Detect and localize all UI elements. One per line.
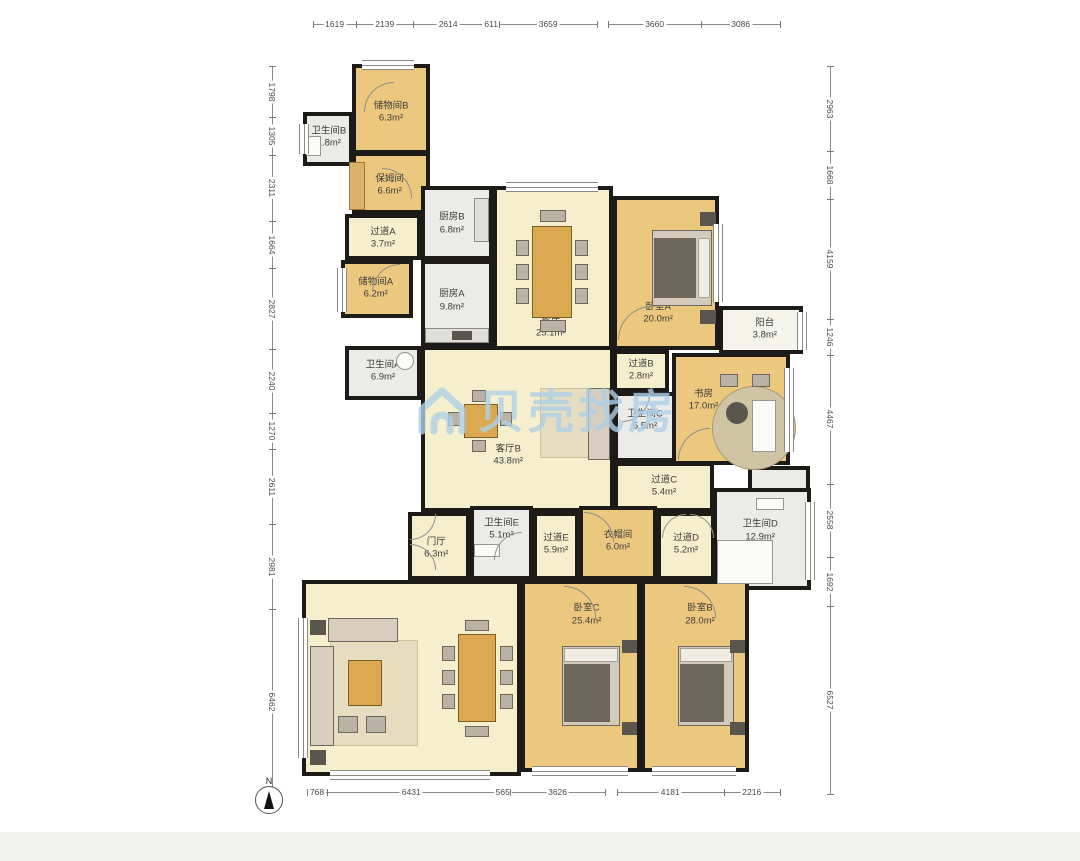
dim-tick xyxy=(269,524,276,525)
dining-chair-6 xyxy=(575,288,588,304)
room-name: 卫生间D xyxy=(743,519,778,531)
room-area: 5.4m² xyxy=(651,487,677,499)
dining-chair-2 xyxy=(516,264,529,280)
dim-tick xyxy=(269,349,276,350)
dim-value: 2558 xyxy=(825,509,835,532)
room-area: 9.8m² xyxy=(439,301,464,313)
dim-value: 6431 xyxy=(400,787,423,797)
dim-value: 565 xyxy=(494,787,512,797)
dim-tick xyxy=(827,484,834,485)
room-label-living-b: 客厅B43.8m² xyxy=(493,444,523,469)
dim-value: 1668 xyxy=(825,164,835,187)
footer-strip xyxy=(0,832,1080,861)
bath-d-tub xyxy=(717,540,773,584)
dim-value: 2614 xyxy=(437,19,460,29)
room-name: 书房 xyxy=(689,388,719,400)
dim-tick xyxy=(269,155,276,156)
bedroom-b-nightstand-2 xyxy=(730,722,745,735)
room-name: 卫生间E xyxy=(484,517,519,529)
win-bedroom-a-right xyxy=(713,224,723,302)
win-balcony-right xyxy=(797,312,807,350)
bedroom-b-pillow xyxy=(680,648,732,662)
bedroom-b-nightstand-1 xyxy=(730,640,745,653)
dining-chair-7 xyxy=(540,210,566,222)
room-name: 厨房B xyxy=(439,212,464,224)
dim-value: 1305 xyxy=(267,125,277,148)
living-a-ottoman-2 xyxy=(366,716,386,733)
dim-value: 2611 xyxy=(267,476,277,498)
room-label-corridor-b: 过道B2.8m² xyxy=(628,359,653,384)
living-b-table xyxy=(464,404,498,438)
win-bath-d-right xyxy=(805,502,815,580)
room-area: 5.5m² xyxy=(627,421,662,433)
living-a-chair-6 xyxy=(500,694,513,709)
dim-tick xyxy=(413,21,414,28)
win-bath-b-left xyxy=(299,124,309,154)
dim-value: 2827 xyxy=(267,297,277,320)
dim-tick xyxy=(499,21,500,28)
compass-north-label: N xyxy=(252,776,286,786)
dim-value: 1619 xyxy=(323,19,346,29)
dim-tick xyxy=(597,21,598,28)
room-name: 阳台 xyxy=(753,318,777,330)
living-a-chair-7 xyxy=(465,620,489,631)
dim-chain-left-0: 1798130523111664282722401270261129816462 xyxy=(265,66,279,794)
dining-chair-4 xyxy=(575,240,588,256)
dining-chair-1 xyxy=(516,240,529,256)
dim-chain-top-1: 36603086 xyxy=(608,17,780,31)
room-name: 客厅B xyxy=(493,444,523,456)
room-area: 2.8m² xyxy=(628,371,653,383)
dim-tick xyxy=(617,789,618,796)
living-a-chair-1 xyxy=(442,646,455,661)
win-study-right xyxy=(784,368,794,452)
dim-tick xyxy=(827,355,834,356)
dim-tick xyxy=(327,789,328,796)
dim-value: 1664 xyxy=(267,233,277,256)
room-balcony: 阳台3.8m² xyxy=(719,306,803,354)
dim-value: 3659 xyxy=(537,19,560,29)
dim-value: 611 xyxy=(482,19,500,29)
win-bedroom-c-bottom xyxy=(532,766,628,776)
dim-tick xyxy=(269,609,276,610)
bedroom-a-blanket xyxy=(654,238,696,298)
room-label-study: 书房17.0m² xyxy=(689,388,719,413)
living-a-chair-3 xyxy=(442,694,455,709)
win-bedroom-b-bottom xyxy=(652,766,736,776)
living-a-chair-8 xyxy=(465,726,489,737)
dim-tick xyxy=(269,449,276,450)
dim-value: 2981 xyxy=(267,555,277,578)
win-storage-b-top xyxy=(362,60,414,70)
north-compass: N xyxy=(252,776,286,814)
room-name: 过道A xyxy=(370,227,395,239)
dim-tick xyxy=(269,117,276,118)
dim-value: 4181 xyxy=(659,787,682,797)
kitchen-a-stove xyxy=(452,331,472,340)
study-desk xyxy=(752,400,776,452)
study-chair xyxy=(726,402,748,424)
dim-tick xyxy=(269,413,276,414)
living-a-chair-5 xyxy=(500,670,513,685)
dining-chair-8 xyxy=(540,320,566,332)
dining-chair-5 xyxy=(575,264,588,280)
compass-ring xyxy=(255,786,283,814)
bedroom-c-pillow xyxy=(564,648,618,662)
room-area: 6.9m² xyxy=(366,372,401,384)
dim-tick xyxy=(269,268,276,269)
living-a-sofa-2 xyxy=(328,618,398,642)
dim-chain-right-0: 29631668415912464467255816926527 xyxy=(823,66,837,794)
dim-value: 3086 xyxy=(729,19,752,29)
dim-value: 6527 xyxy=(825,689,835,712)
dim-tick xyxy=(827,66,834,67)
room-area: 5.9m² xyxy=(543,545,568,557)
dim-value: 2216 xyxy=(740,787,763,797)
dim-tick xyxy=(780,21,781,28)
living-a-coffee-table xyxy=(348,660,382,706)
dim-value: 1270 xyxy=(267,420,277,443)
win-living-a-left xyxy=(298,618,308,758)
room-area: 3.8m² xyxy=(753,330,777,342)
dim-tick xyxy=(269,66,276,67)
dim-tick xyxy=(827,557,834,558)
dining-table xyxy=(532,226,572,318)
bedroom-b-blanket xyxy=(680,664,724,722)
room-area: 6.3m² xyxy=(374,113,409,125)
room-label-corridor-a: 过道A3.7m² xyxy=(370,227,395,252)
dim-line xyxy=(608,24,780,25)
dim-tick xyxy=(724,789,725,796)
room-name: 门厅 xyxy=(424,537,448,549)
room-label-kitchen-b: 厨房B6.8m² xyxy=(439,212,464,237)
dim-value: 3626 xyxy=(546,787,569,797)
room-label-corridor-e: 过道E5.9m² xyxy=(543,532,568,557)
living-a-side-table-1 xyxy=(310,620,326,635)
dim-tick xyxy=(356,21,357,28)
room-label-corridor-c: 过道C5.4m² xyxy=(651,475,677,500)
room-corridor-b: 过道B2.8m² xyxy=(613,350,669,392)
room-area: 3.7m² xyxy=(370,239,395,251)
dim-value: 2139 xyxy=(373,19,396,29)
living-b-chair-4 xyxy=(472,440,486,452)
dim-tick xyxy=(605,789,606,796)
dim-value: 2311 xyxy=(267,177,277,199)
dim-tick xyxy=(510,789,511,796)
living-b-chair-3 xyxy=(472,390,486,402)
dim-chain-bottom-1: 41812216 xyxy=(617,785,780,799)
kitchen-b-counter xyxy=(474,198,489,242)
dim-tick xyxy=(827,199,834,200)
living-b-sofa xyxy=(588,388,610,460)
living-a-sofa-1 xyxy=(310,646,334,746)
living-a-table xyxy=(458,634,496,722)
room-area: 17.0m² xyxy=(689,401,719,413)
room-name: 过道B xyxy=(628,359,653,371)
dim-value: 4159 xyxy=(825,248,835,271)
living-a-side-table-2 xyxy=(310,750,326,765)
room-corridor-a: 过道A3.7m² xyxy=(345,214,421,260)
win-dining-top xyxy=(506,182,598,192)
room-corridor-c: 过道C5.4m² xyxy=(614,462,714,512)
bedroom-a-pillow xyxy=(698,238,710,298)
bedroom-c-nightstand-1 xyxy=(622,640,637,653)
living-b-chair-1 xyxy=(448,412,460,426)
dim-value: 2240 xyxy=(267,370,277,393)
dim-tick xyxy=(269,221,276,222)
room-area: 6.8m² xyxy=(439,224,464,236)
room-area: 5.2m² xyxy=(673,545,699,557)
room-area: 43.8m² xyxy=(493,456,523,468)
dining-chair-3 xyxy=(516,288,529,304)
living-a-chair-4 xyxy=(500,646,513,661)
dim-tick xyxy=(827,606,834,607)
living-a-ottoman-1 xyxy=(338,716,358,733)
room-name: 过道C xyxy=(651,475,677,487)
dim-value: 6462 xyxy=(267,690,277,713)
dim-tick xyxy=(827,151,834,152)
dim-tick xyxy=(827,794,834,795)
study-seat-2 xyxy=(752,374,770,387)
win-living-a-bottom xyxy=(330,770,490,780)
bath-d-shelf xyxy=(756,498,784,510)
dim-tick xyxy=(827,319,834,320)
dim-tick xyxy=(608,21,609,28)
dim-value: 1692 xyxy=(825,570,835,593)
dim-value: 2963 xyxy=(825,97,835,120)
bath-a-washer xyxy=(396,352,414,370)
room-name: 过道E xyxy=(543,532,568,544)
bedroom-a-nightstand-2 xyxy=(700,310,716,324)
floor-plan: 储物间B6.3m²卫生间B1.8m²保姆间6.6m²过道A3.7m²储物间A6.… xyxy=(0,0,1080,861)
study-seat-1 xyxy=(720,374,738,387)
room-name: 厨房A xyxy=(439,289,464,301)
dim-tick xyxy=(701,21,702,28)
dim-value: 1798 xyxy=(267,80,277,103)
dim-chain-bottom-0: 76864315653626 xyxy=(307,785,605,799)
nanny-bed xyxy=(349,162,365,210)
bedroom-c-blanket xyxy=(564,664,610,722)
room-label-balcony: 阳台3.8m² xyxy=(753,318,777,343)
dim-tick xyxy=(313,21,314,28)
dim-chain-top-0: 1619213926146113659 xyxy=(313,17,597,31)
living-a-chair-2 xyxy=(442,670,455,685)
dim-tick xyxy=(780,789,781,796)
room-area: 6.0m² xyxy=(604,542,633,554)
living-b-chair-2 xyxy=(500,412,512,426)
dim-value: 3660 xyxy=(643,19,666,29)
bedroom-c-nightstand-2 xyxy=(622,722,637,735)
room-label-bath-a: 卫生间A6.9m² xyxy=(366,360,401,385)
dim-value: 1246 xyxy=(825,326,835,349)
room-corridor-e: 过道E5.9m² xyxy=(533,512,579,580)
dim-value: 768 xyxy=(308,787,326,797)
room-label-kitchen-a: 厨房A9.8m² xyxy=(439,289,464,314)
compass-needle-icon xyxy=(264,791,274,809)
dim-value: 4467 xyxy=(825,408,835,431)
win-storage-a-left xyxy=(337,268,347,312)
